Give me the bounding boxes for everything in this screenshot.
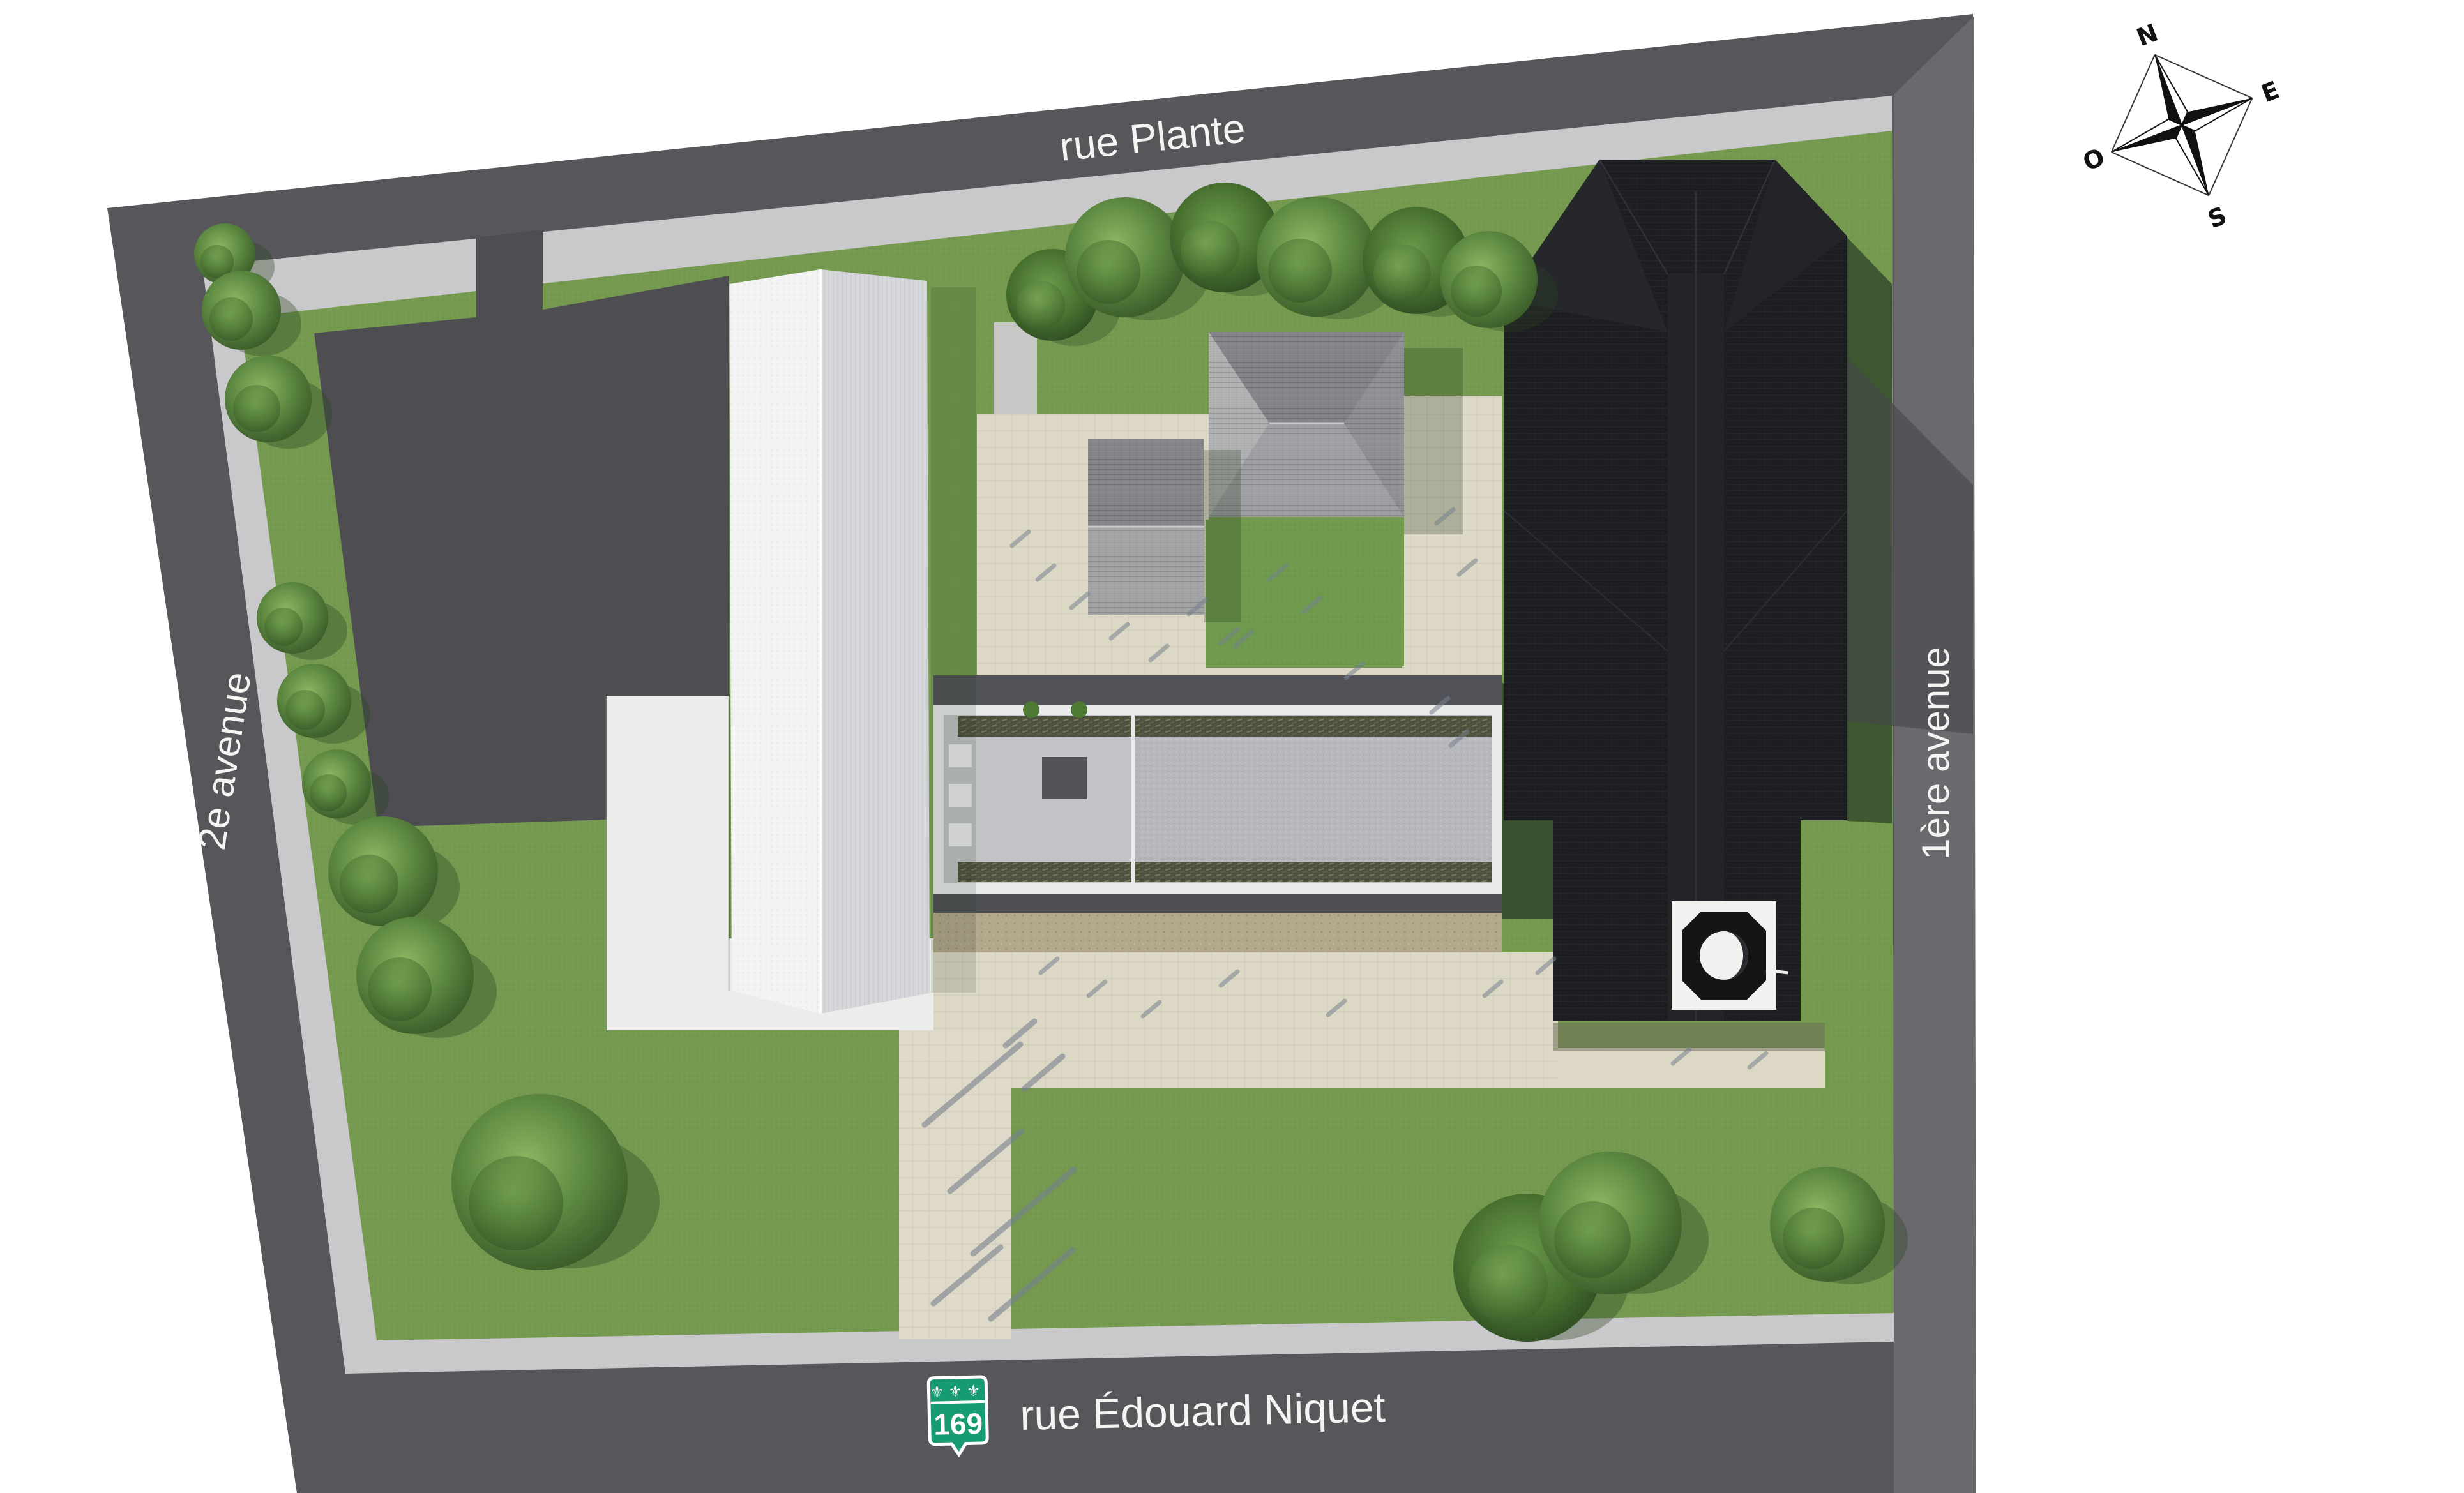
gable-roof-house xyxy=(1088,439,1241,622)
planter-bush-1 xyxy=(1023,701,1039,718)
street-label-south: rue Édouard Niquet xyxy=(1020,1383,1386,1439)
shield-number: 169 xyxy=(933,1407,983,1441)
main-roof-east-texture xyxy=(820,269,930,1014)
north-path xyxy=(994,322,1037,418)
hip-roof-house xyxy=(1209,332,1463,534)
green-roof-strip-south-tex xyxy=(958,862,1492,882)
route-169-shield-icon: ⚜⚜⚜ 169 xyxy=(928,1377,988,1455)
planter-bush-2 xyxy=(1071,701,1087,718)
rooftop-unit xyxy=(1042,757,1087,799)
shield-divider xyxy=(931,1402,985,1403)
compass-label-o: O xyxy=(2079,143,2108,177)
plaza-below-church xyxy=(1558,1048,1825,1088)
gravel-band-texture xyxy=(933,913,1502,952)
compass-label-e: E xyxy=(2258,76,2283,108)
main-building-shadow xyxy=(931,287,976,993)
compass-label-s: S xyxy=(2204,201,2230,234)
plaza-south-texture xyxy=(933,952,1558,1088)
compass-label-n: N xyxy=(2133,19,2161,52)
courtyard-building xyxy=(933,675,1502,952)
site-plan-figure: rue Plante 2e avenue 1ère avenue rue Édo… xyxy=(0,0,2464,1493)
main-building xyxy=(729,269,976,1014)
compass-rose-icon: N E S O xyxy=(2045,0,2318,268)
site-plan-canvas: rue Plante 2e avenue 1ère avenue rue Édo… xyxy=(0,0,2464,1493)
church-south-shadow xyxy=(1553,1023,1825,1051)
church-cupola xyxy=(1672,901,1788,1010)
compass-star-white xyxy=(2085,28,2279,223)
shield-fleurs: ⚜⚜⚜ xyxy=(930,1382,985,1401)
courtyard-north-shadow xyxy=(933,675,1502,705)
hip-house-shadow xyxy=(1404,348,1463,534)
courtyard-south-shadow xyxy=(933,894,1502,913)
green-roof-strip-north-tex xyxy=(958,716,1492,737)
main-roof-west-texture xyxy=(729,269,820,1014)
street-label-east: 1ère avenue xyxy=(1914,647,1957,860)
gable-house-shadow xyxy=(1204,450,1241,622)
